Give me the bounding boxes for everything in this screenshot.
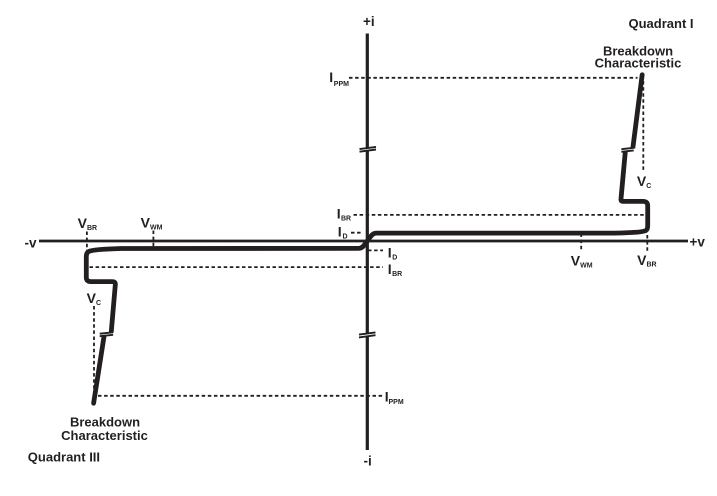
svg-text:-v: -v	[25, 235, 37, 250]
svg-text:D: D	[343, 234, 348, 241]
svg-text:C: C	[646, 183, 651, 190]
svg-text:Quadrant I: Quadrant I	[628, 16, 693, 31]
svg-text:BR: BR	[87, 225, 97, 232]
svg-text:+v: +v	[690, 234, 706, 249]
svg-text:I: I	[388, 245, 392, 261]
svg-text:BR: BR	[341, 216, 351, 223]
svg-text:BR: BR	[392, 271, 402, 278]
svg-text:Characteristic: Characteristic	[595, 56, 682, 71]
svg-text:-i: -i	[364, 453, 372, 468]
svg-text:I: I	[337, 206, 341, 222]
svg-text:I: I	[329, 69, 333, 85]
svg-text:D: D	[392, 255, 397, 262]
svg-text:I: I	[388, 261, 392, 277]
svg-text:WM: WM	[580, 262, 593, 269]
svg-text:I: I	[338, 224, 342, 240]
svg-text:C: C	[96, 300, 101, 307]
svg-text:PPM: PPM	[334, 81, 349, 88]
svg-text:+i: +i	[363, 14, 375, 29]
svg-text:Characteristic: Characteristic	[61, 428, 148, 443]
svg-text:Quadrant III: Quadrant III	[28, 449, 100, 464]
svg-text:PPM: PPM	[389, 399, 404, 406]
svg-text:BR: BR	[647, 262, 657, 269]
svg-text:WM: WM	[150, 224, 163, 231]
